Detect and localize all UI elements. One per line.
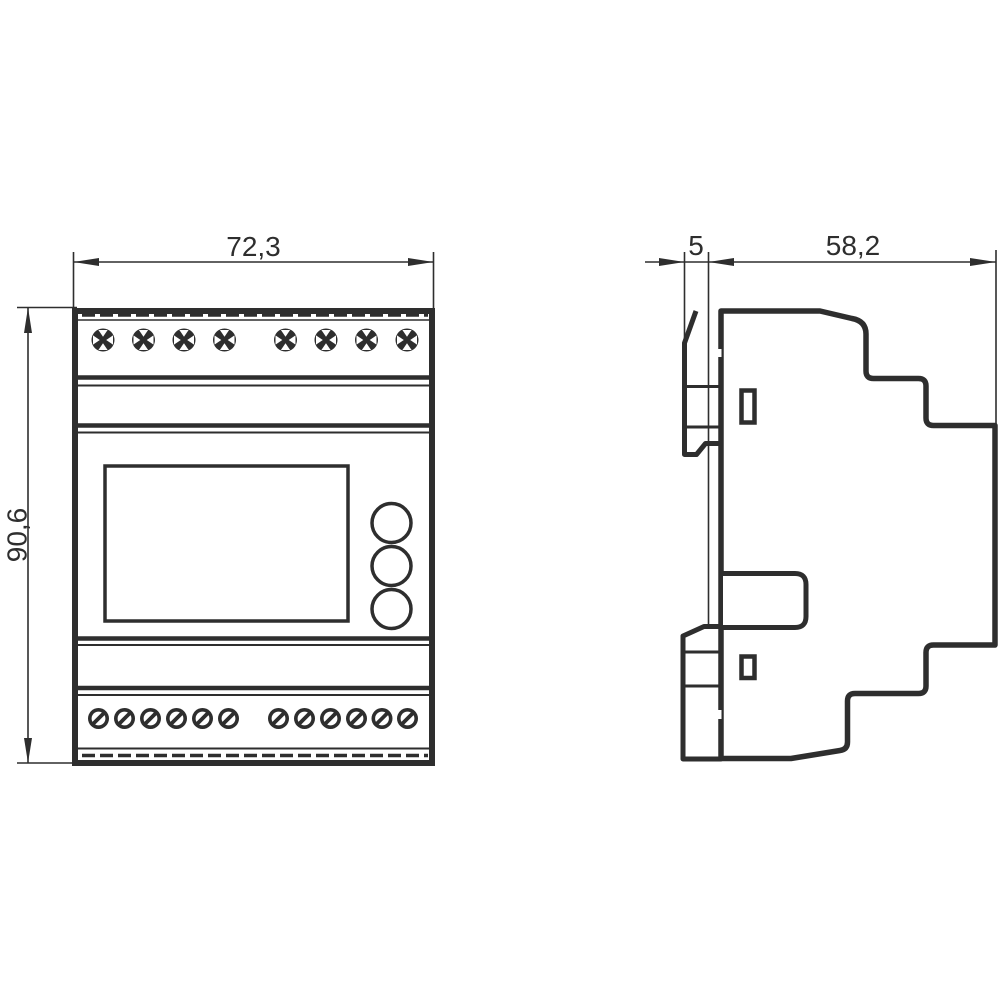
phillips-screw-icon [396, 329, 419, 352]
phillips-screw-icon [355, 329, 378, 352]
side-top-terminal-cover [685, 311, 722, 455]
arrowhead-up-icon [24, 308, 32, 334]
front-view [75, 311, 432, 763]
arrowhead-right-icon [659, 258, 685, 266]
side-bottom-terminal-cover [683, 627, 721, 760]
slotted-screw-icon [166, 708, 187, 729]
front-button [372, 590, 411, 629]
slotted-screw-icon [320, 708, 341, 729]
slotted-screw-icon [88, 708, 109, 729]
arrowhead-right-icon [970, 258, 996, 266]
lcd-display-window [105, 466, 348, 621]
slotted-screw-icon [192, 708, 213, 729]
dimension-height-label: 90,6 [2, 508, 33, 563]
slotted-screw-icon [346, 708, 367, 729]
dimension-height: 90,6 [2, 308, 78, 764]
arrowhead-right-icon [408, 258, 434, 266]
parting-notch [718, 710, 722, 719]
phillips-screw-icon [274, 329, 297, 352]
side-view [683, 252, 995, 759]
dimension-offset-label: 5 [688, 230, 704, 261]
sealing-slot [742, 657, 755, 679]
sealing-slot [742, 391, 755, 423]
arrowhead-down-icon [24, 738, 32, 763]
front-button [372, 504, 411, 543]
dimension-depth-label: 58,2 [826, 230, 881, 261]
dimension-width: 72,3 [74, 231, 434, 308]
side-housing-profile [721, 311, 995, 759]
din-rail-clip [723, 574, 806, 628]
slotted-screw-icon [268, 708, 289, 729]
slotted-screw-icon [114, 708, 135, 729]
arrowhead-left-icon [709, 258, 735, 266]
phillips-screw-icon [132, 329, 155, 352]
phillips-screw-icon [213, 329, 236, 352]
dimension-width-label: 72,3 [226, 231, 281, 262]
phillips-screw-icon [92, 329, 115, 352]
phillips-screw-icon [173, 329, 196, 352]
front-button [372, 547, 411, 586]
slotted-screw-icon [397, 708, 418, 729]
arrowhead-left-icon [74, 258, 100, 266]
slotted-screw-icon [140, 708, 161, 729]
slotted-screw-icon [218, 708, 239, 729]
phillips-screw-icon [315, 329, 338, 352]
technical-drawing-svg: 72,3 90,6 5 58,2 [0, 0, 1000, 1000]
drawing-canvas: 72,3 90,6 5 58,2 [0, 0, 1000, 1000]
slotted-screw-icon [372, 708, 393, 729]
parting-notch [718, 349, 722, 357]
slotted-screw-icon [294, 708, 315, 729]
